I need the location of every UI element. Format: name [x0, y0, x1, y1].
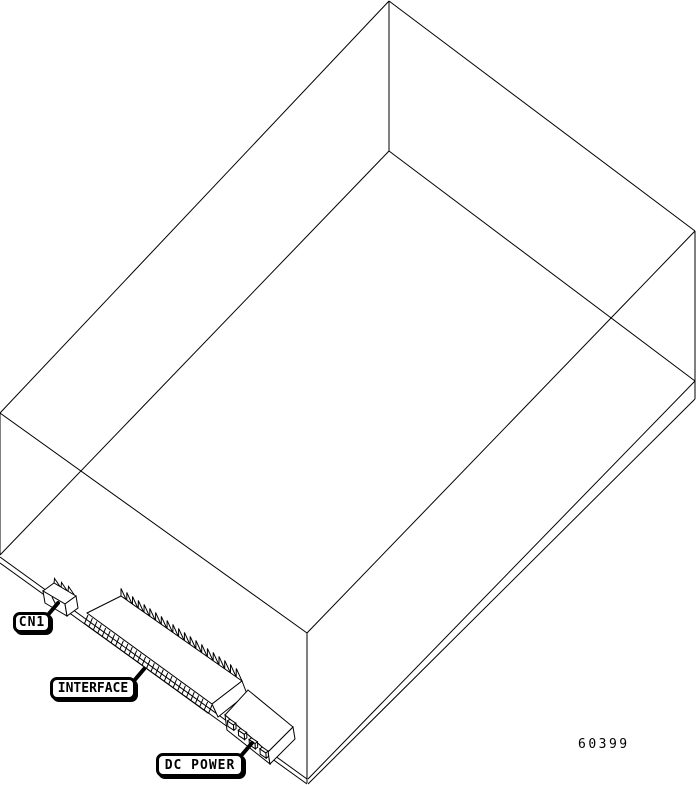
interface-contact-stroke [102, 628, 106, 637]
edge-bottom-back-left [0, 151, 389, 555]
interface-contact-stroke [155, 666, 159, 675]
interface-contact-stroke [129, 647, 133, 656]
interface-contact-stroke [151, 663, 155, 672]
figure-part-number: 60399 [578, 737, 630, 752]
interface-contact-stroke [111, 634, 115, 643]
edge-top-back-right [389, 1, 695, 231]
dc-power-pin [244, 733, 247, 740]
interface-contact-stroke [182, 686, 186, 695]
interface-contact-stroke [178, 683, 182, 692]
interface-contact-stroke [164, 673, 168, 682]
cn1-connector [43, 578, 78, 616]
interface-contact-stroke [89, 618, 93, 627]
dc-power-pin [234, 723, 237, 730]
cn1-callout-label: CN1 [13, 612, 51, 633]
dc-power-pin [255, 742, 258, 749]
interface-contact-stroke [116, 638, 120, 647]
technical-drawing-page: CN1 INTERFACE DC POWER 60399 [0, 0, 698, 785]
interface-contact-stroke [93, 621, 97, 630]
interface-contact-stroke [200, 699, 204, 708]
interface-contact-stroke [209, 705, 213, 714]
interface-contact-stroke [160, 670, 164, 679]
interface-contact-stroke [120, 641, 124, 650]
interface-contact-stroke [85, 615, 89, 624]
edge-top-back-left [0, 1, 389, 413]
dc-power-callout-label: DC POWER [156, 753, 244, 777]
interface-contact-stroke [186, 689, 190, 698]
interface-contact-stroke [147, 660, 151, 669]
dc-power-pin [266, 751, 269, 758]
interface-contact-stroke [124, 644, 128, 653]
edge-bottom-front-right [308, 381, 695, 779]
interface-contact-stroke [133, 650, 137, 659]
edge-bottom-back-right [389, 151, 695, 381]
interface-contact-stroke [195, 695, 199, 704]
drive-wireframe [0, 1, 695, 784]
interface-contact-stroke [138, 654, 142, 663]
interface-contact-stroke [173, 679, 177, 688]
interface-contact-stroke [169, 676, 173, 685]
interface-contact-stroke [142, 657, 146, 666]
edge-top-front-right [307, 231, 695, 633]
pcb-edge-right [308, 399, 695, 784]
drive-isometric-drawing [0, 0, 698, 785]
interface-callout-label: INTERFACE [50, 677, 136, 700]
interface-contact-stroke [204, 702, 208, 711]
interface-contact-stroke [107, 631, 111, 640]
interface-contact-stroke [191, 692, 195, 701]
interface-contact-stroke [98, 625, 102, 634]
